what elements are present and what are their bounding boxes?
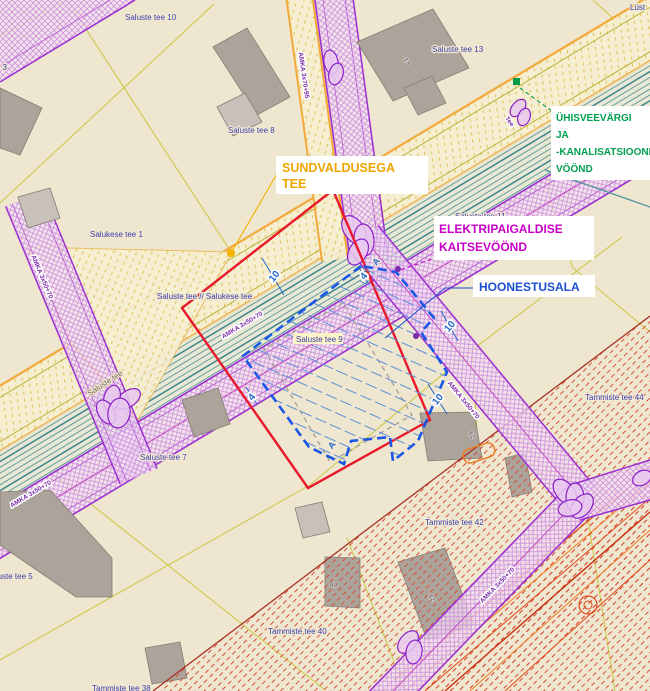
callout-hoonestusala: HOONESTUSALA bbox=[479, 280, 580, 294]
callout-electrical-line2: KAITSEVÖÖND bbox=[439, 239, 527, 254]
callout-water-line1: ÜHISVEEVÄRGI bbox=[556, 111, 632, 124]
parcel-label: Saluste tee // Salukese tee bbox=[157, 292, 253, 301]
parcel-label: Saluste tee 8 bbox=[228, 126, 275, 135]
parcel-label: Saluste tee 5 bbox=[0, 572, 33, 581]
planning-map: 10 10 10 4 4 A A AMKA 3x50+70 AMKA 3x70+… bbox=[0, 0, 650, 691]
parcel-label: Saluste tee 13 bbox=[432, 45, 484, 54]
parcel-label: Tammiste tee 38 bbox=[92, 684, 151, 691]
callout-electrical-line1: ELEKTRIPAIGALDISE bbox=[439, 222, 563, 236]
parcel-label: Tammiste tee 40 bbox=[268, 627, 327, 636]
cable-marker-dot bbox=[413, 333, 419, 339]
parcel-label: Saluste tee 3 bbox=[0, 63, 8, 72]
callout-water-line4: VÖÖND bbox=[556, 162, 593, 175]
parcel-label-saluste-9: Saluste tee 9 bbox=[296, 335, 343, 344]
parcel-label: Saluste tee 10 bbox=[125, 13, 177, 22]
water-zone-marker bbox=[513, 78, 520, 85]
callout-water-line3: -KANALISATSIOONI bbox=[556, 147, 650, 158]
parcel-label: Tammiste tee 42 bbox=[425, 518, 484, 527]
parcel-label: Saluste tee 7 bbox=[140, 453, 187, 462]
callout-sundvaldus-line2: TEE bbox=[282, 177, 306, 191]
map-viewport: 10 10 10 4 4 A A AMKA 3x50+70 AMKA 3x70+… bbox=[0, 0, 650, 691]
cable-marker-dot bbox=[395, 266, 401, 272]
building-number: 40 bbox=[330, 582, 338, 589]
parcel-label: Tammiste tee 44 bbox=[585, 393, 644, 402]
parcel-label: Lüst bbox=[630, 3, 646, 12]
callout-sundvaldus-line1: SUNDVALDUSEGA bbox=[282, 161, 395, 175]
sundvaldus-leader-dot bbox=[227, 249, 235, 257]
parcel-label: Salukese tee 1 bbox=[90, 230, 143, 239]
callout-water-line2: JA bbox=[556, 130, 569, 141]
